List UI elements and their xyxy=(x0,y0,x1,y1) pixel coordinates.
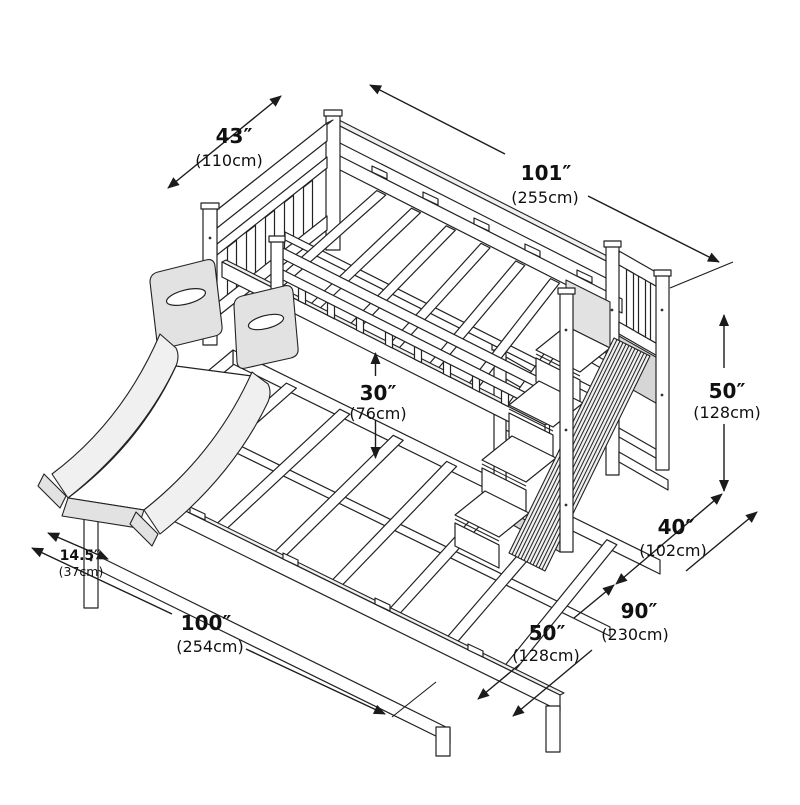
dim-staircase-depth-inches: 40″ xyxy=(658,515,695,539)
dim-overall-height-metric: (128cm) xyxy=(693,403,760,422)
dim-footprint-inches: 90″ xyxy=(621,599,658,623)
dim-overall-length-metric: (255cm) xyxy=(511,188,578,207)
dim-bunk-gap-metric: (76cm) xyxy=(349,404,406,423)
dim-slide-width: 14.5″ (37cm) xyxy=(48,533,108,579)
dim-overall-height: 50″ (128cm) xyxy=(693,315,760,491)
diagram-page: 43″ (110cm) 101″ (255cm) 30″ (76cm) 50″ … xyxy=(0,0,800,800)
dim-headboard-width-metric: (110cm) xyxy=(195,151,262,170)
dim-bed-width-inches: 50″ xyxy=(529,621,566,645)
dim-staircase-depth: 40″ (102cm) xyxy=(616,494,722,584)
dim-bed-width-metric: (128cm) xyxy=(512,646,579,665)
bunk-bed-dimension-diagram: 43″ (110cm) 101″ (255cm) 30″ (76cm) 50″ … xyxy=(0,0,800,800)
slide xyxy=(38,260,298,546)
dim-bunk-gap-inches: 30″ xyxy=(360,381,397,405)
staircase-front-post xyxy=(558,288,575,552)
dim-headboard-width-inches: 43″ xyxy=(216,124,253,148)
dim-length-with-slide-inches: 100″ xyxy=(181,611,232,635)
dim-slide-width-inches: 14.5″ xyxy=(60,548,101,564)
dim-overall-length-inches: 101″ xyxy=(521,161,572,185)
dim-staircase-depth-metric: (102cm) xyxy=(639,541,706,560)
dim-footprint-metric: (230cm) xyxy=(601,625,668,644)
dim-length-with-slide-metric: (254cm) xyxy=(176,637,243,656)
dim-overall-height-inches: 50″ xyxy=(709,379,746,403)
